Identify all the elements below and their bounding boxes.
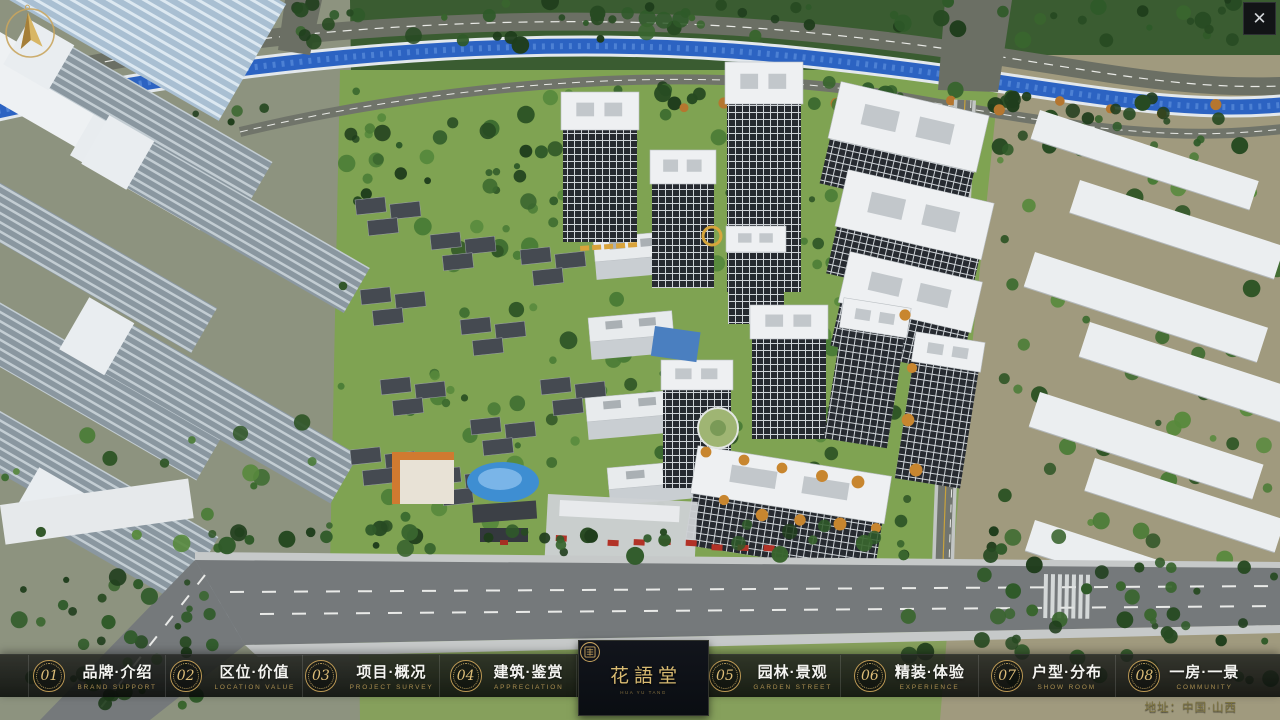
nav-item-garden[interactable]: 05 园林·景观 GARDEN STREET bbox=[704, 655, 841, 697]
nav-sublabel: LOCATION VALUE bbox=[214, 684, 295, 690]
aerial-masterplan-render bbox=[0, 0, 1280, 720]
project-name: 花語堂 bbox=[610, 661, 682, 688]
nav-label: 园林·景观 bbox=[758, 661, 828, 682]
nav-label: 区位·价值 bbox=[220, 661, 290, 682]
project-logo-button[interactable]: 花語堂 HUA YU TANG bbox=[578, 640, 709, 716]
nav-label: 品牌·介绍 bbox=[82, 661, 152, 682]
nav-sublabel: EXPERIENCE bbox=[900, 684, 960, 690]
close-button[interactable]: ✕ bbox=[1243, 2, 1276, 35]
nav-sublabel: PROJECT SURVEY bbox=[350, 684, 434, 690]
nav-sublabel: GARDEN STREET bbox=[753, 684, 832, 690]
nav-item-architecture[interactable]: 04 建筑·鉴赏 APPRECIATION bbox=[440, 655, 577, 697]
close-icon: ✕ bbox=[1252, 10, 1266, 27]
number-badge: 03 bbox=[305, 660, 337, 692]
compass-north-icon bbox=[0, 0, 60, 62]
nav-item-views[interactable]: 08 一房·一景 COMMUNITY bbox=[1116, 655, 1252, 697]
nav-item-floorplan[interactable]: 07 户型·分布 SHOW ROOM bbox=[979, 655, 1116, 697]
nav-sublabel: SHOW ROOM bbox=[1038, 684, 1096, 690]
nav-label: 精装·体验 bbox=[895, 661, 965, 682]
nav-label: 建筑·鉴赏 bbox=[493, 661, 563, 682]
number-badge: 07 bbox=[991, 660, 1023, 692]
nav-item-location[interactable]: 02 区位·价值 LOCATION VALUE bbox=[166, 655, 303, 697]
number-badge: 04 bbox=[450, 660, 482, 692]
number-badge: 06 bbox=[854, 660, 886, 692]
nav-sublabel: COMMUNITY bbox=[1176, 684, 1232, 690]
nav-sublabel: BRAND SUPPORT bbox=[78, 684, 157, 690]
project-tagline: HUA YU TANG bbox=[620, 690, 667, 695]
sales-presentation-screen: ✕ 01 品牌·介绍 BRAND SUPPORT 02 区位·价值 LOCATI… bbox=[0, 0, 1280, 720]
number-badge: 01 bbox=[33, 660, 65, 692]
nav-item-brand[interactable]: 01 品牌·介绍 BRAND SUPPORT bbox=[28, 655, 166, 697]
nav-item-interior[interactable]: 06 精装·体验 EXPERIENCE bbox=[841, 655, 978, 697]
nav-label: 一房·一景 bbox=[1169, 661, 1239, 682]
nav-group-left: 01 品牌·介绍 BRAND SUPPORT 02 区位·价值 LOCATION… bbox=[28, 655, 577, 697]
number-badge: 08 bbox=[1128, 660, 1160, 692]
nav-group-right: 05 园林·景观 GARDEN STREET 06 精装·体验 EXPERIEN… bbox=[704, 655, 1252, 697]
number-badge: 02 bbox=[170, 660, 202, 692]
number-badge: 05 bbox=[709, 660, 741, 692]
seal-icon bbox=[579, 641, 601, 663]
project-address: 地址：中国·山西 bbox=[1145, 699, 1237, 715]
nav-label: 户型·分布 bbox=[1032, 661, 1102, 682]
nav-label: 项目·概况 bbox=[357, 661, 427, 682]
nav-sublabel: APPRECIATION bbox=[494, 684, 564, 690]
nav-item-project[interactable]: 03 项目·概况 PROJECT SURVEY bbox=[303, 655, 440, 697]
